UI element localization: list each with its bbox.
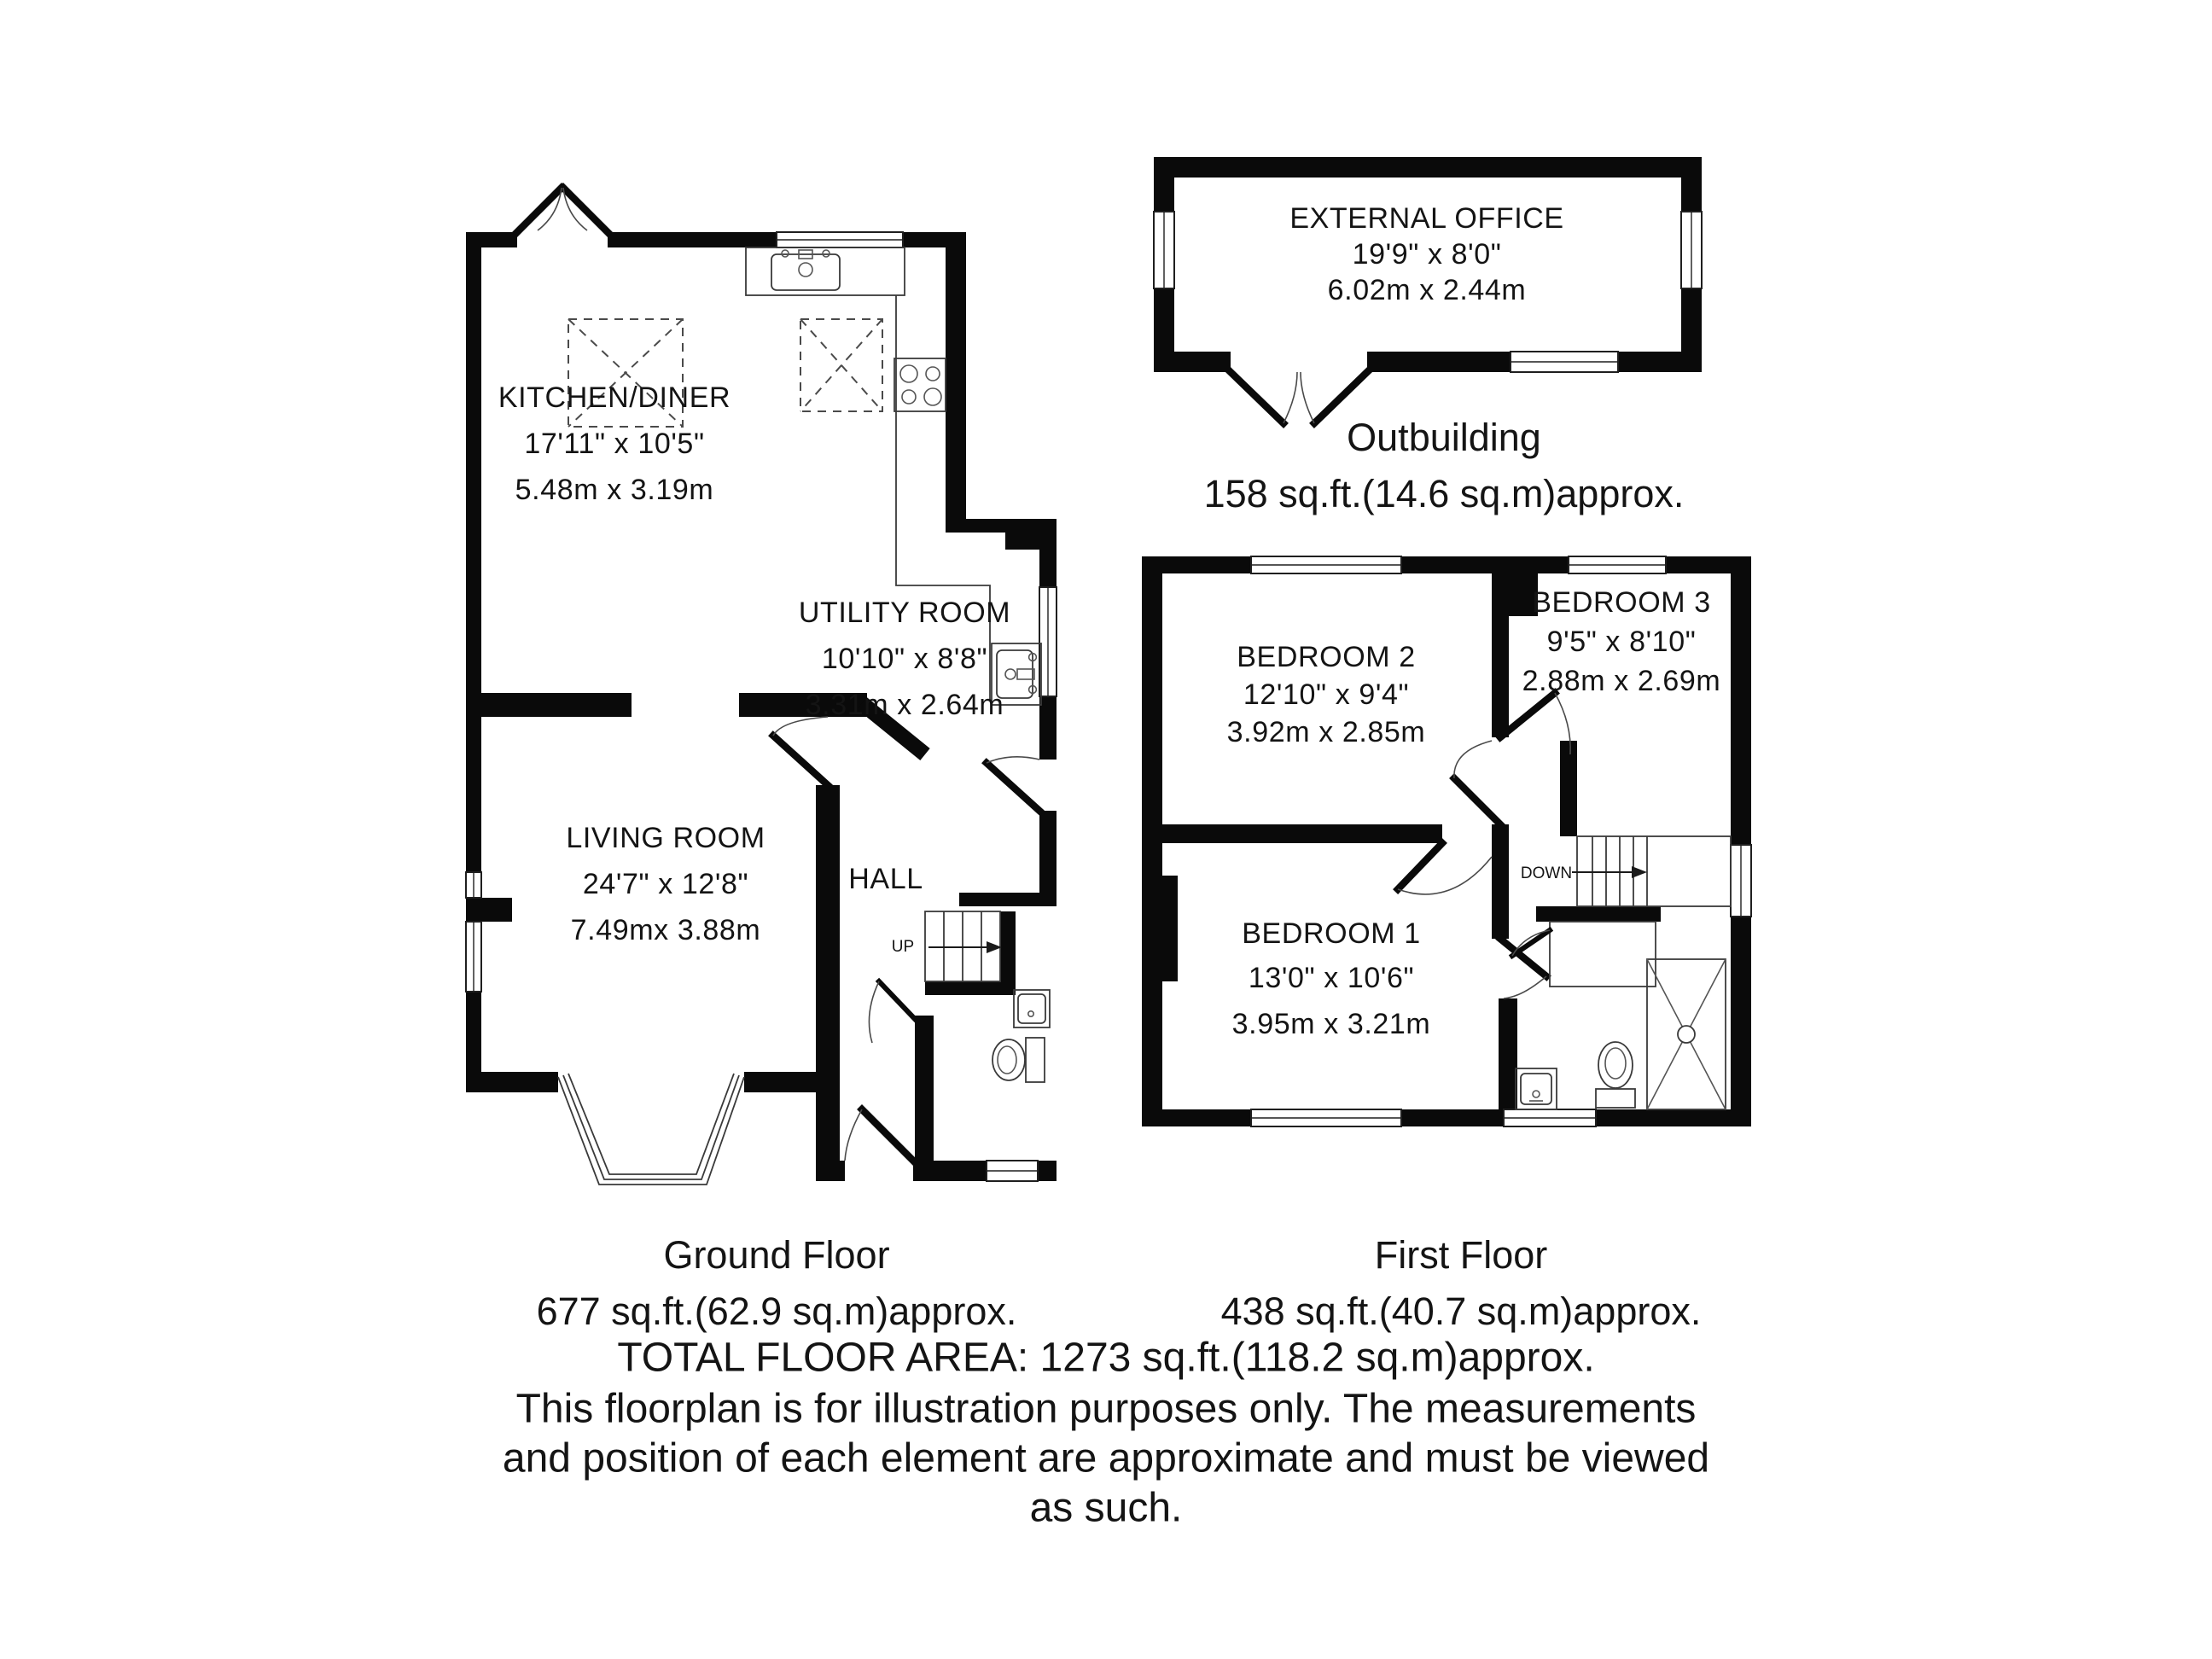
stairs-up (925, 911, 1002, 981)
first-floor-area: 438 sq.ft.(40.7 sq.m)approx. (1221, 1289, 1702, 1333)
wc-toilet (992, 1038, 1045, 1082)
bedroom1-window (1251, 1109, 1401, 1126)
office-window-bottom (1511, 352, 1618, 372)
stairs-down (1572, 836, 1731, 906)
bedroom2-metric: 3.92m x 2.85m (1227, 716, 1426, 748)
outbuilding-title: Outbuilding (1347, 416, 1541, 459)
living-room-metric: 7.49mx 3.88m (571, 914, 761, 946)
kitchen-counter-line (896, 295, 990, 700)
office-window-left (1154, 212, 1174, 288)
floorplan-canvas: KITCHEN/DINER 17'11" x 10'5" 5.48m x 3.1… (0, 0, 2212, 1659)
wc-door (869, 981, 915, 1043)
stairs-down-label: DOWN (1521, 864, 1572, 882)
bedroom3-imperial: 9'5" x 8'10" (1547, 626, 1697, 658)
bedroom2-imperial: 12'10" x 9'4" (1243, 678, 1409, 711)
bedroom2-window (1251, 556, 1401, 573)
bay-window (558, 1074, 744, 1185)
living-room-label: LIVING ROOM (566, 822, 765, 854)
footer-disclaimer: TOTAL FLOOR AREA: 1273 sq.ft.(118.2 sq.m… (503, 1336, 1709, 1531)
bedroom1-door (1398, 843, 1492, 894)
wc-sink (1014, 990, 1050, 1027)
bathroom-sink (1516, 1068, 1557, 1109)
office-window-right (1681, 212, 1702, 288)
office-imperial: 19'9" x 8'0" (1353, 238, 1502, 271)
office-label: EXTERNAL OFFICE (1289, 202, 1563, 235)
back-door (987, 757, 1039, 811)
first-floor-plan: BEDROOM 2 12'10" x 9'4" 3.92m x 2.85m BE… (1142, 556, 1751, 1126)
disclaimer-line3: as such. (1030, 1486, 1183, 1531)
first-floor-fixtures (1516, 959, 1726, 1109)
office-metric: 6.02m x 2.44m (1328, 274, 1527, 306)
landing-cupboard (1512, 922, 1656, 987)
outbuilding-plan: EXTERNAL OFFICE 19'9" x 8'0" 6.02m x 2.4… (1154, 157, 1702, 515)
utility-window (1039, 587, 1057, 696)
living-hall-door (773, 717, 828, 785)
ground-floor-labels: KITCHEN/DINER 17'11" x 10'5" 5.48m x 3.1… (498, 381, 1010, 956)
bedroom3-window (1569, 556, 1666, 573)
hall-label: HALL (848, 863, 923, 895)
kitchen-label: KITCHEN/DINER (498, 381, 731, 414)
ground-floor-area: 677 sq.ft.(62.9 sq.m)approx. (537, 1289, 1017, 1333)
floor-captions: Ground Floor 677 sq.ft.(62.9 sq.m)approx… (537, 1233, 1702, 1333)
disclaimer-line1: This floorplan is for illustration purpo… (516, 1387, 1697, 1432)
kitchen-hob (894, 358, 946, 411)
bedroom1-metric: 3.95m x 3.21m (1232, 1008, 1431, 1040)
bedroom1-imperial: 13'0" x 10'6" (1249, 962, 1414, 994)
utility-imperial: 10'10" x 8'8" (822, 643, 987, 675)
bedroom3-label: BEDROOM 3 (1532, 586, 1710, 619)
shower-cubicle (1647, 959, 1726, 1109)
kitchen-metric: 5.48m x 3.19m (515, 474, 714, 506)
first-floor-title: First Floor (1375, 1233, 1548, 1277)
stairs-up-label: UP (892, 938, 914, 956)
bathroom-window (1504, 1109, 1596, 1126)
living-room-window-upper (466, 872, 481, 898)
total-floor-area: TOTAL FLOOR AREA: 1273 sq.ft.(118.2 sq.m… (617, 1336, 1594, 1381)
utility-metric: 3.31m x 2.64m (806, 689, 1004, 721)
bathroom-toilet (1596, 1042, 1635, 1108)
front-door (845, 1109, 913, 1161)
outbuilding-area: 158 sq.ft.(14.6 sq.m)approx. (1204, 472, 1685, 515)
wc-window (987, 1161, 1038, 1181)
kitchen-sink (746, 247, 905, 295)
kitchen-imperial: 17'11" x 10'5" (524, 428, 704, 460)
floorplan-svg: KITCHEN/DINER 17'11" x 10'5" 5.48m x 3.1… (0, 0, 2212, 1659)
bedroom2-door (1454, 741, 1500, 824)
kitchen-french-doors (517, 188, 608, 232)
bedroom3-metric: 2.88m x 2.69m (1522, 665, 1721, 697)
bedroom3-door (1500, 693, 1570, 754)
bedroom1-label: BEDROOM 1 (1242, 917, 1420, 950)
bedroom2-label: BEDROOM 2 (1237, 641, 1415, 673)
landing-window (1731, 845, 1751, 917)
disclaimer-line2: and position of each element are approxi… (503, 1436, 1709, 1481)
living-room-window-lower (466, 922, 481, 992)
down-arrow-head (1632, 866, 1647, 878)
ground-floor-plan: KITCHEN/DINER 17'11" x 10'5" 5.48m x 3.1… (466, 188, 1057, 1185)
first-floor-doors (1398, 693, 1656, 998)
ground-floor-title: Ground Floor (663, 1233, 889, 1277)
kitchen-window (777, 232, 903, 247)
utility-label: UTILITY ROOM (799, 597, 1010, 629)
living-room-imperial: 24'7" x 12'8" (583, 868, 748, 900)
